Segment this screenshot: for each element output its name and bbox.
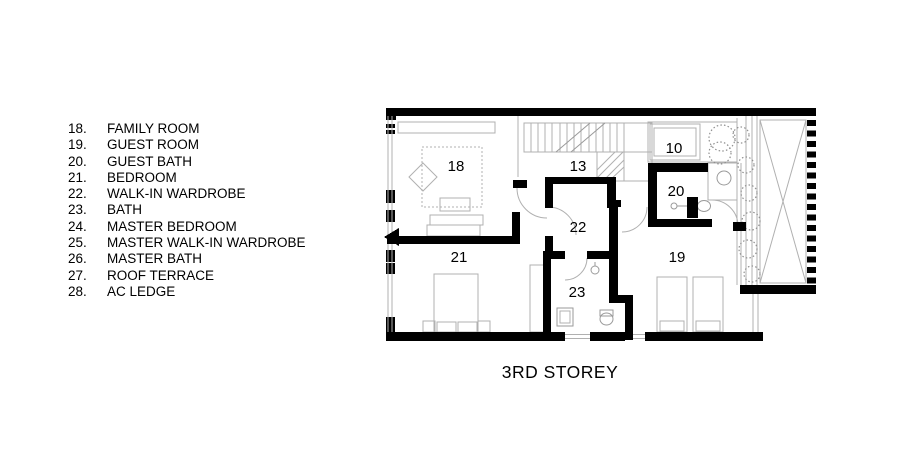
bedroom-21-furniture <box>423 265 545 332</box>
room-label-guest-room: 19 <box>669 249 686 266</box>
room-label-bedroom: 21 <box>451 249 468 266</box>
plan-title: 3RD STOREY <box>495 362 625 383</box>
room-label-walk-in-wardrobe: 22 <box>570 219 587 236</box>
room-label-bath: 23 <box>569 284 586 301</box>
planter-and-terrace <box>737 116 806 332</box>
room-label-family-room: 18 <box>448 158 465 175</box>
room-label-stair-hall: 13 <box>570 158 587 175</box>
floor-plan-drawing: 18 13 10 20 22 21 19 23 <box>0 0 908 468</box>
void-10-outline <box>648 122 737 162</box>
floor-plan-sheet: 18.FAMILY ROOM 19.GUEST ROOM 20.GUEST BA… <box>0 0 908 468</box>
family-room-furniture <box>398 122 495 236</box>
room-label-void: 10 <box>666 140 683 157</box>
room-label-guest-bath: 20 <box>668 183 685 200</box>
guest-room-19-furniture <box>657 277 723 332</box>
